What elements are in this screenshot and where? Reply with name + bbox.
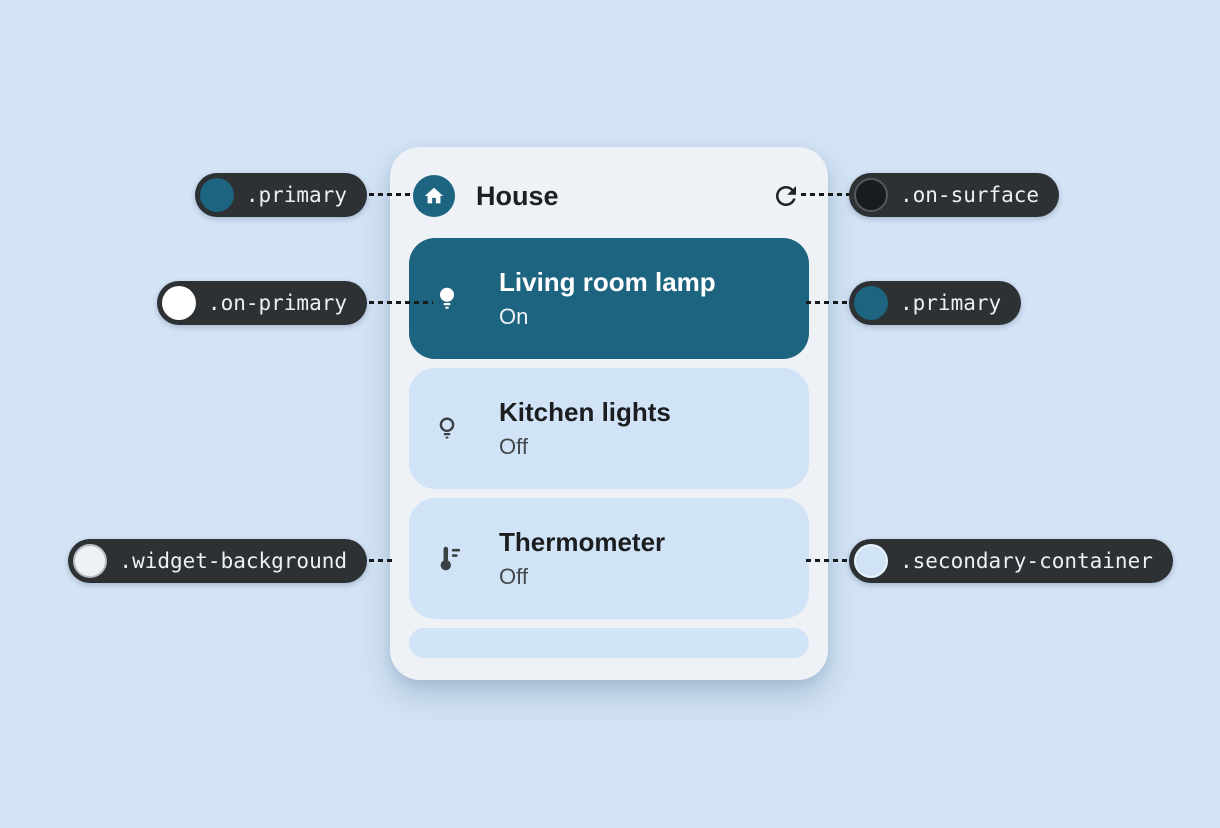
device-name: Kitchen lights <box>499 395 671 429</box>
color-swatch-primary <box>854 286 888 320</box>
partial-device-row <box>409 628 809 658</box>
token-label: .secondary-container <box>900 549 1153 573</box>
device-name: Thermometer <box>499 525 665 559</box>
token-label: .primary <box>900 291 1001 315</box>
connector-line-primary-left <box>360 193 410 196</box>
connector-line-on-primary <box>360 301 433 304</box>
lightbulb-off-icon <box>431 413 463 445</box>
token-label: .widget-background <box>119 549 347 573</box>
connector-line-secondary-container <box>806 559 852 562</box>
connector-line-primary-right <box>806 301 852 304</box>
widget-title: House <box>476 181 771 212</box>
device-row-thermometer[interactable]: Thermometer Off <box>409 498 809 619</box>
annotation-pill-primary-right: .primary <box>849 281 1021 325</box>
widget-header: House <box>409 175 809 217</box>
annotation-pill-on-primary: .on-primary <box>157 281 367 325</box>
color-swatch-on-primary <box>162 286 196 320</box>
device-status: Off <box>499 432 671 462</box>
color-swatch-secondary-container <box>854 544 888 578</box>
house-icon <box>413 175 455 217</box>
device-status: Off <box>499 562 665 592</box>
color-swatch-widget-background <box>73 544 107 578</box>
color-swatch-on-surface <box>854 178 888 212</box>
home-widget: House Living room lamp On <box>390 147 828 680</box>
refresh-icon[interactable] <box>771 181 801 211</box>
annotation-pill-on-surface: .on-surface <box>849 173 1059 217</box>
token-label: .on-primary <box>208 291 347 315</box>
device-row-kitchen-lights[interactable]: Kitchen lights Off <box>409 368 809 489</box>
color-swatch-primary <box>200 178 234 212</box>
device-status: On <box>499 302 716 332</box>
device-name: Living room lamp <box>499 265 716 299</box>
device-row-living-room-lamp[interactable]: Living room lamp On <box>409 238 809 359</box>
thermostat-icon <box>431 543 463 575</box>
annotation-pill-widget-background: .widget-background <box>68 539 367 583</box>
connector-line-on-surface <box>801 193 851 196</box>
canvas: House Living room lamp On <box>0 0 1220 828</box>
token-label: .primary <box>246 183 347 207</box>
token-label: .on-surface <box>900 183 1039 207</box>
lightbulb-on-icon <box>431 283 463 315</box>
annotation-pill-secondary-container: .secondary-container <box>849 539 1173 583</box>
annotation-pill-primary-left: .primary <box>195 173 367 217</box>
